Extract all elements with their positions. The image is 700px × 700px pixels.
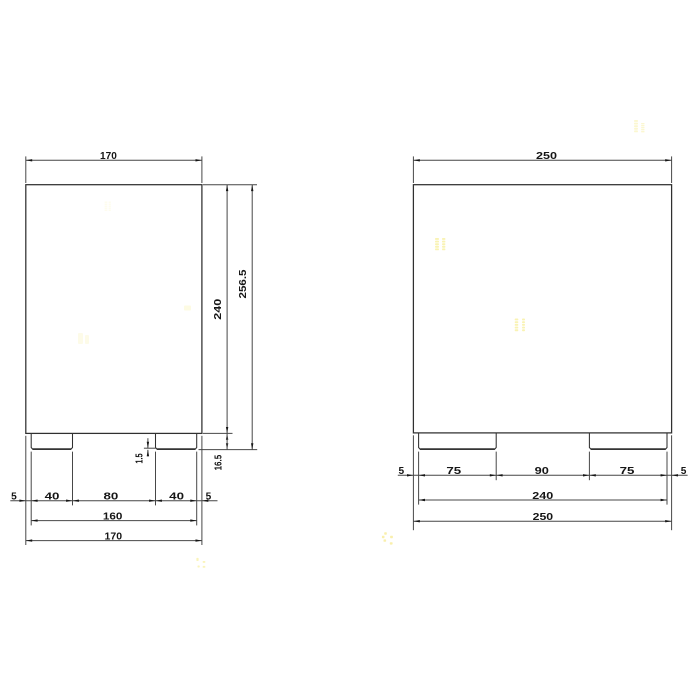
- svg-text:5: 5: [206, 492, 212, 503]
- svg-text:16.5: 16.5: [214, 455, 225, 471]
- svg-text:40: 40: [169, 492, 184, 503]
- svg-text:5: 5: [11, 492, 17, 503]
- svg-text:80: 80: [104, 492, 119, 503]
- svg-text:250: 250: [536, 151, 557, 162]
- svg-text:170: 170: [100, 151, 117, 162]
- svg-text:250: 250: [533, 512, 554, 523]
- svg-text:240: 240: [532, 491, 553, 502]
- svg-text:160: 160: [103, 512, 123, 523]
- svg-text:90: 90: [535, 466, 550, 477]
- svg-text:240: 240: [213, 298, 224, 319]
- svg-text:170: 170: [105, 532, 123, 543]
- svg-text:5: 5: [681, 466, 687, 477]
- svg-text:75: 75: [446, 466, 461, 477]
- svg-text:40: 40: [45, 492, 60, 503]
- svg-text:5: 5: [398, 466, 404, 477]
- svg-text:1.5: 1.5: [134, 453, 145, 463]
- svg-text:75: 75: [620, 466, 635, 477]
- svg-text:256.5: 256.5: [238, 269, 249, 298]
